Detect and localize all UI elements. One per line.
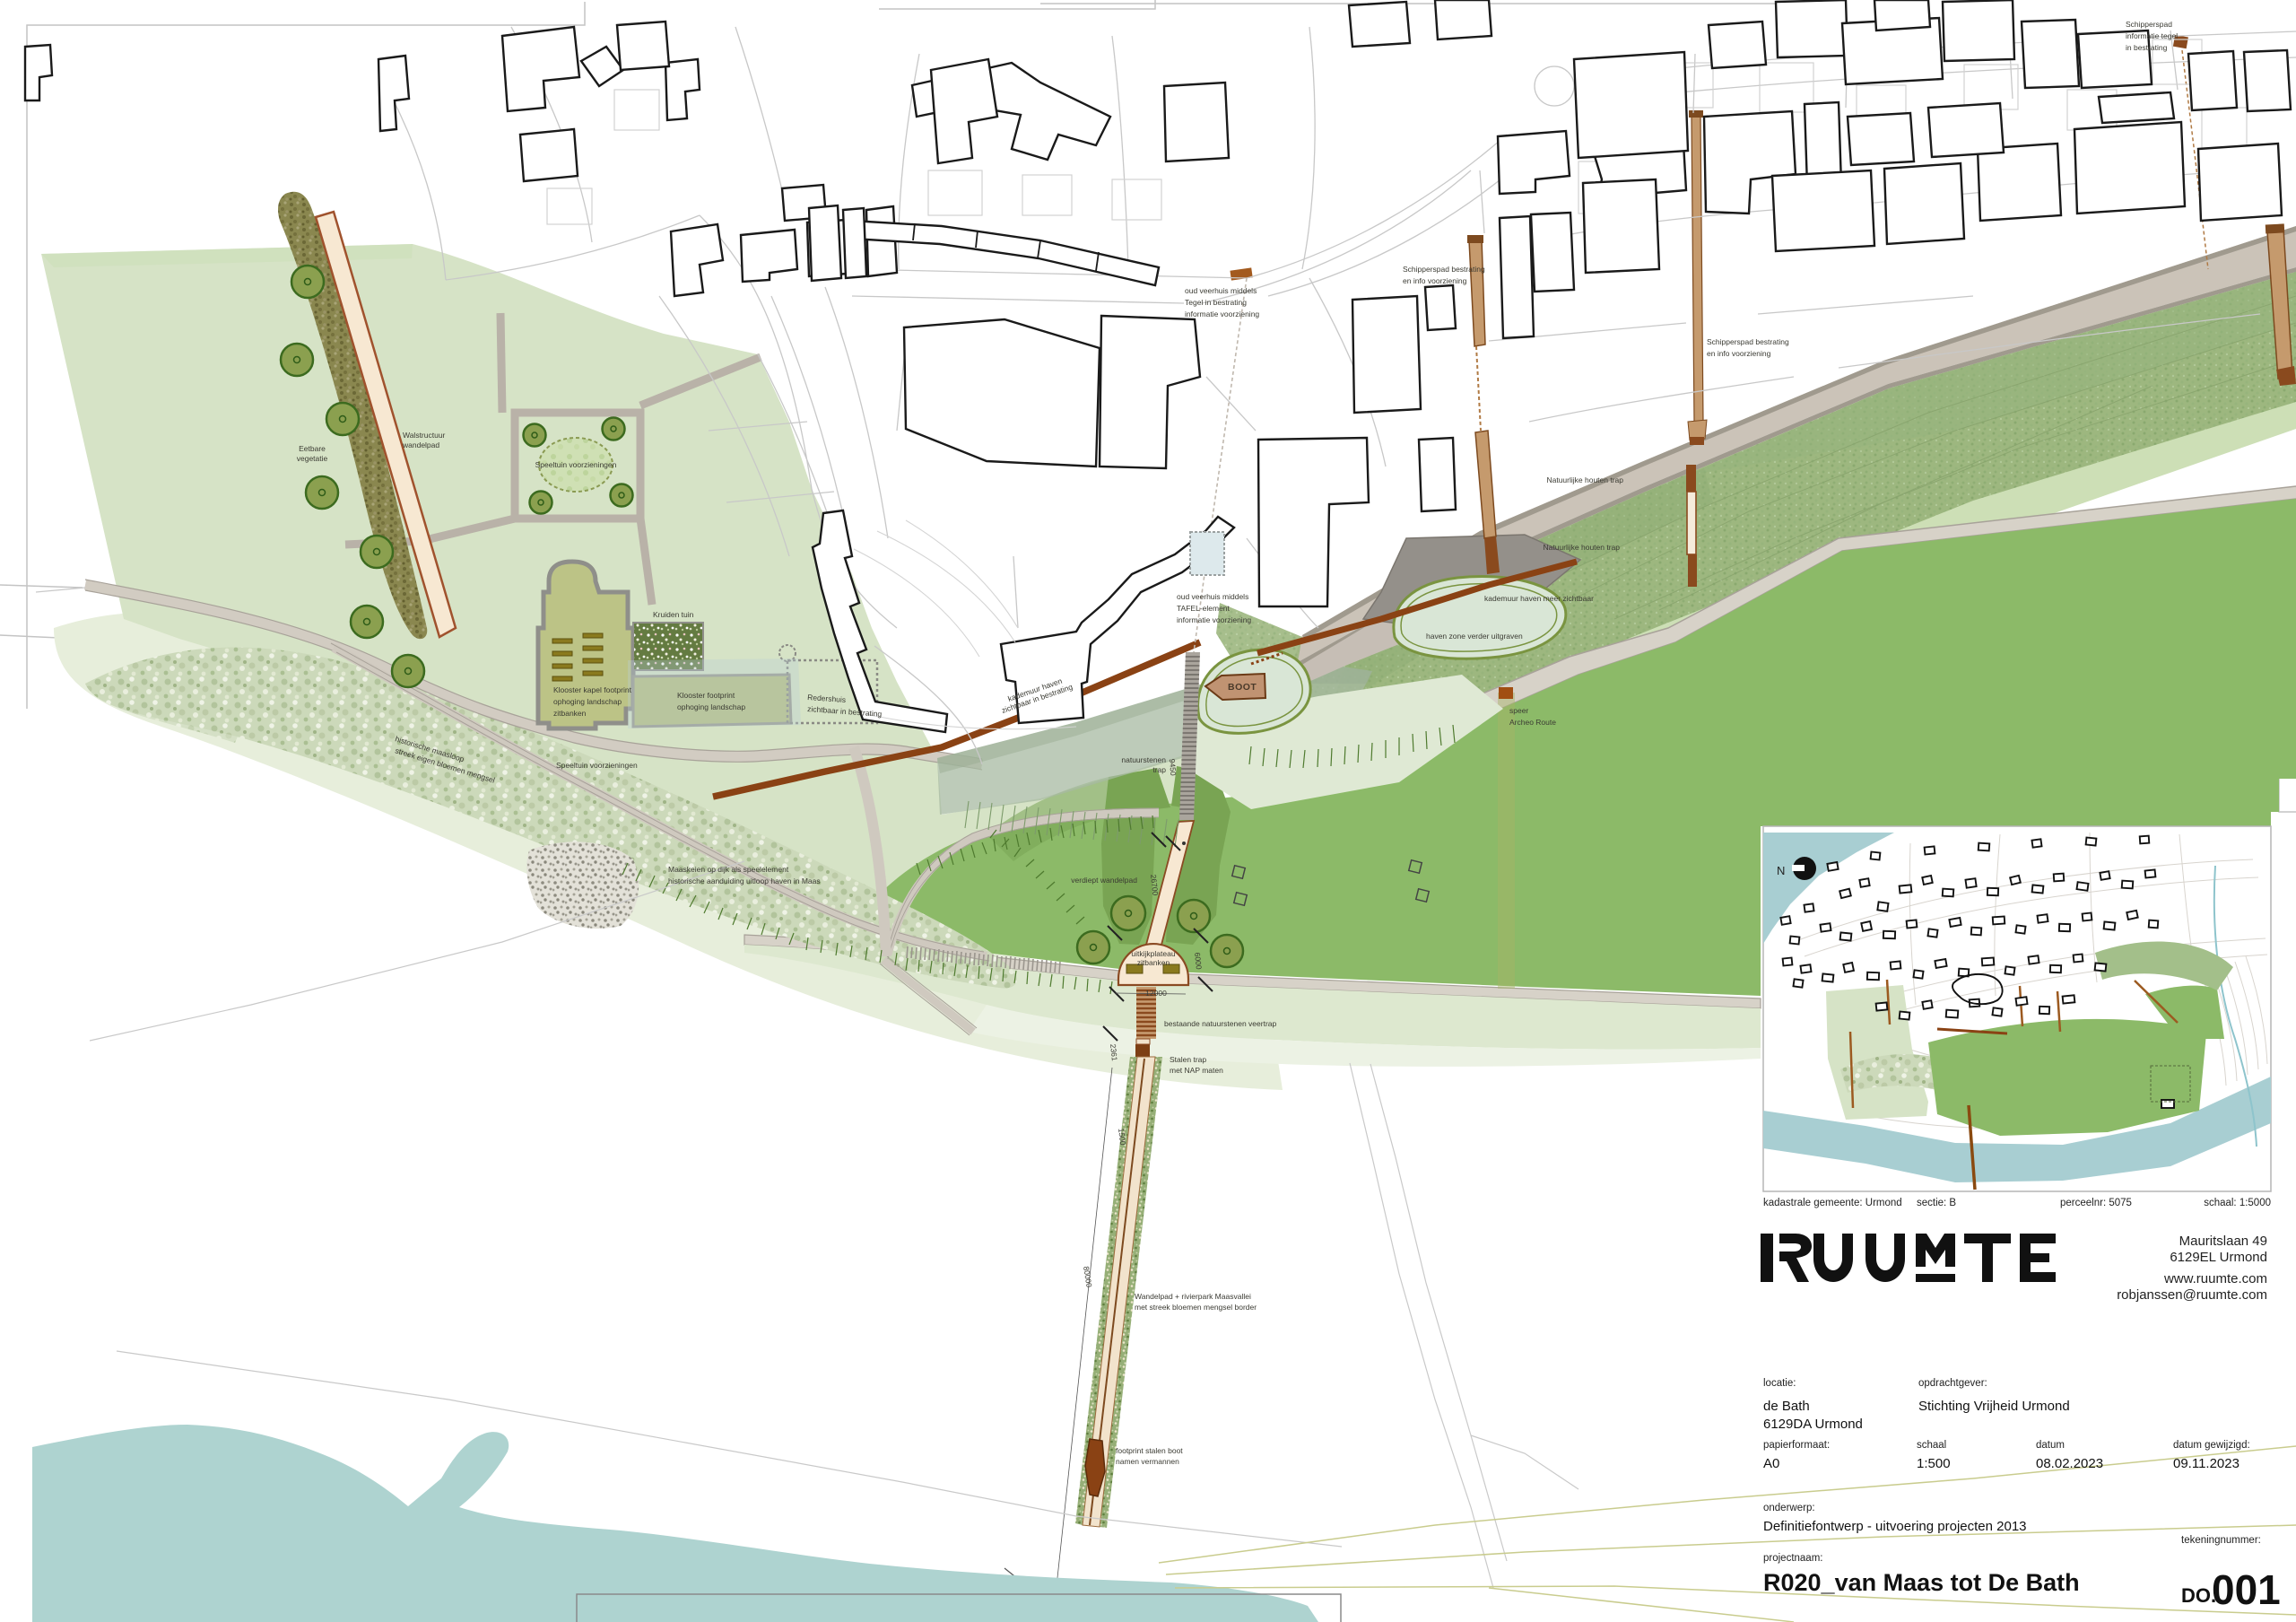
- svg-text:9450: 9450: [1168, 758, 1178, 776]
- svg-text:Schipperspad bestrating: Schipperspad bestrating: [1707, 337, 1789, 346]
- svg-text:Definitiefontwerp - uitvoering: Definitiefontwerp - uitvoering projecten…: [1763, 1519, 2027, 1534]
- svg-text:www.ruumte.com: www.ruumte.com: [2163, 1271, 2267, 1286]
- svg-text:6129DA Urmond: 6129DA Urmond: [1763, 1417, 1863, 1432]
- svg-text:Tegel in bestrating: Tegel in bestrating: [1185, 298, 1247, 307]
- svg-text:zitbanken: zitbanken: [1137, 958, 1170, 967]
- svg-text:N: N: [1777, 864, 1785, 877]
- svg-text:vegetatie: vegetatie: [297, 454, 328, 463]
- svg-text:001: 001: [2212, 1566, 2281, 1613]
- svg-text:de Bath: de Bath: [1763, 1399, 1810, 1414]
- svg-text:09.11.2023: 09.11.2023: [2173, 1456, 2239, 1471]
- svg-text:6129EL Urmond: 6129EL Urmond: [2170, 1250, 2267, 1265]
- svg-text:sectie: B: sectie: B: [1917, 1198, 1956, 1208]
- svg-text:verdiept wandelpad: verdiept wandelpad: [1071, 876, 1137, 885]
- svg-text:met NAP maten: met NAP maten: [1170, 1066, 1223, 1075]
- svg-text:2361: 2361: [1109, 1043, 1119, 1061]
- svg-text:tekeningnummer:: tekeningnummer:: [2181, 1535, 2261, 1546]
- svg-text:trap: trap: [1152, 765, 1166, 774]
- svg-text:papierformaat:: papierformaat:: [1763, 1440, 1830, 1451]
- svg-text:Eetbare: Eetbare: [299, 444, 326, 453]
- svg-text:Schipperspad: Schipperspad: [2126, 20, 2172, 29]
- svg-text:Schipperspad bestrating: Schipperspad bestrating: [1403, 265, 1485, 274]
- svg-text:datum gewijzigd:: datum gewijzigd:: [2173, 1440, 2250, 1451]
- svg-text:speer: speer: [1509, 706, 1528, 715]
- svg-text:schaal: 1:5000: schaal: 1:5000: [2204, 1198, 2271, 1208]
- svg-text:1:500: 1:500: [1917, 1456, 1951, 1471]
- svg-text:Klooster kapel footprint: Klooster kapel footprint: [553, 685, 632, 694]
- svg-text:A0: A0: [1763, 1456, 1779, 1471]
- svg-text:Natuurlijke houten trap: Natuurlijke houten trap: [1546, 475, 1623, 484]
- svg-text:ophoging landschap: ophoging landschap: [677, 702, 745, 711]
- svg-text:kademuur haven meer zichtbaar: kademuur haven meer zichtbaar: [1484, 594, 1594, 603]
- svg-text:ophoging landschap: ophoging landschap: [553, 697, 622, 706]
- svg-text:projectnaam:: projectnaam:: [1763, 1553, 1822, 1564]
- svg-text:historische aanduiding uitloop: historische aanduiding uitloop haven in …: [668, 876, 821, 885]
- svg-text:kadastrale gemeente: Urmond: kadastrale gemeente: Urmond: [1763, 1198, 1902, 1208]
- svg-text:6000: 6000: [1193, 952, 1204, 970]
- svg-text:informatie tegel: informatie tegel: [2126, 31, 2178, 40]
- svg-text:haven zone verder uitgraven: haven zone verder uitgraven: [1426, 632, 1523, 641]
- svg-text:TAFEL-element: TAFEL-element: [1177, 604, 1231, 613]
- svg-text:en info voorziening: en info voorziening: [1707, 349, 1771, 358]
- svg-text:Speeltuin voorzieningen: Speeltuin voorzieningen: [556, 761, 638, 770]
- svg-text:BOOT: BOOT: [1228, 682, 1257, 693]
- svg-text:Wandelpad + rivierpark Maasval: Wandelpad + rivierpark Maasvallei: [1135, 1292, 1251, 1301]
- svg-text:R020_van Maas tot De Bath: R020_van Maas tot De Bath: [1763, 1569, 2080, 1596]
- svg-text:Stalen trap: Stalen trap: [1170, 1055, 1206, 1064]
- svg-text:informatie voorziening: informatie voorziening: [1185, 310, 1259, 318]
- svg-text:schaal: schaal: [1917, 1440, 1946, 1451]
- svg-text:Maaskeien op dijk als speelele: Maaskeien op dijk als speelelement: [668, 865, 789, 874]
- svg-text:Archeo Route: Archeo Route: [1509, 718, 1556, 727]
- svg-text:uitkijkplateau: uitkijkplateau: [1131, 949, 1175, 958]
- svg-text:12000: 12000: [1145, 989, 1167, 998]
- svg-text:namen vermannen: namen vermannen: [1116, 1457, 1179, 1466]
- svg-text:Stichting Vrijheid Urmond: Stichting Vrijheid Urmond: [1918, 1399, 2070, 1414]
- svg-text:Walstructuur: Walstructuur: [403, 431, 446, 440]
- svg-text:08.02.2023: 08.02.2023: [2036, 1456, 2103, 1471]
- svg-text:opdrachtgever:: opdrachtgever:: [1918, 1378, 1987, 1389]
- svg-text:datum: datum: [2036, 1440, 2065, 1451]
- svg-text:Natuurlijke houten trap: Natuurlijke houten trap: [1543, 543, 1620, 552]
- svg-text:en info voorziening: en info voorziening: [1403, 276, 1467, 285]
- svg-text:Klooster footprint: Klooster footprint: [677, 691, 735, 700]
- svg-text:onderwerp:: onderwerp:: [1763, 1503, 1815, 1513]
- svg-text:Kruiden tuin: Kruiden tuin: [653, 610, 694, 619]
- svg-text:met streek bloemen mengsel bor: met streek bloemen mengsel border: [1135, 1303, 1257, 1312]
- svg-text:in bestrating: in bestrating: [2126, 43, 2168, 52]
- svg-text:locatie:: locatie:: [1763, 1378, 1796, 1389]
- svg-text:zitbanken: zitbanken: [553, 709, 587, 718]
- svg-text:perceelnr: 5075: perceelnr: 5075: [2060, 1198, 2132, 1208]
- svg-text:Speeltuin voorzieningen: Speeltuin voorzieningen: [535, 460, 617, 469]
- svg-text:wandelpad: wandelpad: [402, 440, 439, 449]
- svg-text:robjanssen@ruumte.com: robjanssen@ruumte.com: [2117, 1287, 2267, 1303]
- svg-text:informatie voorziening: informatie voorziening: [1177, 615, 1251, 624]
- svg-text:oud veerhuis middels: oud veerhuis middels: [1177, 592, 1248, 601]
- svg-text:footprint stalen boot: footprint stalen boot: [1116, 1446, 1183, 1455]
- svg-text:bestaande natuurstenen veertra: bestaande natuurstenen veertrap: [1164, 1019, 1277, 1028]
- svg-text:Mauritslaan 49: Mauritslaan 49: [2179, 1234, 2267, 1249]
- svg-text:natuurstenen: natuurstenen: [1121, 755, 1166, 764]
- svg-text:oud veerhuis middels: oud veerhuis middels: [1185, 286, 1257, 295]
